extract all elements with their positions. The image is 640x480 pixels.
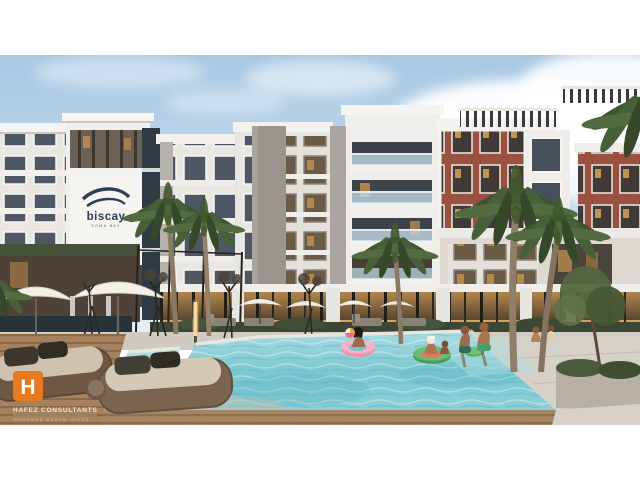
render-image: biscay SOMA BAY	[0, 0, 640, 480]
watermark-monogram: H	[20, 376, 35, 399]
watermark-subtitle: MOHAMED ESSAM HAFEZ	[13, 417, 90, 422]
watermark-title: HAFEZ CONSULTANTS	[13, 407, 98, 414]
roof-pergola	[460, 110, 556, 127]
reflecting-pool	[0, 316, 132, 334]
scene: biscay SOMA BAY	[0, 0, 640, 480]
building-tagline-text: SOMA BAY	[91, 224, 121, 228]
building-brand-text: biscay	[87, 211, 126, 223]
